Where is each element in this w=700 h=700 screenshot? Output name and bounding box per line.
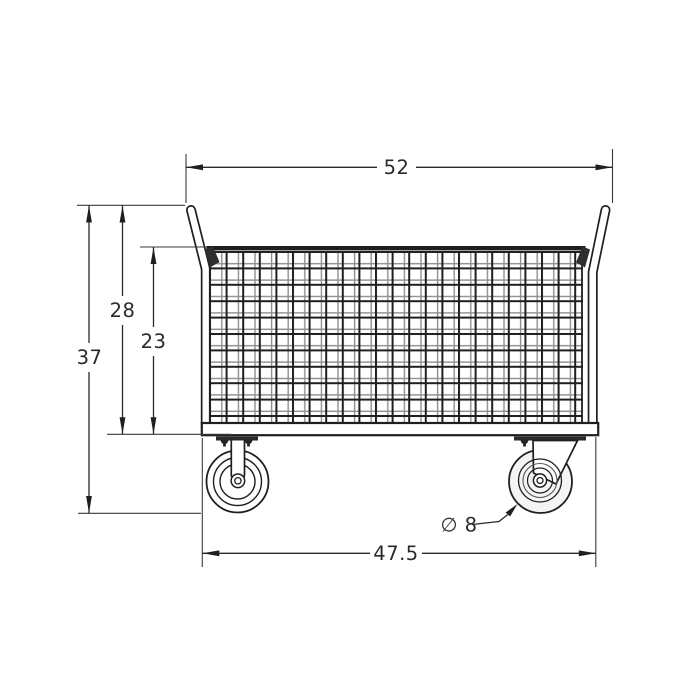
dim-wheel-diameter: ∅ 8 bbox=[440, 504, 517, 537]
arrowhead-down bbox=[86, 496, 92, 513]
dim-base-length-label: 47.5 bbox=[373, 542, 418, 565]
left-handle bbox=[191, 210, 206, 424]
mesh-panel bbox=[209, 251, 583, 423]
arrowhead-up bbox=[151, 247, 157, 264]
arrowhead-down bbox=[151, 417, 157, 434]
dim-overall-width-label: 52 bbox=[384, 156, 410, 179]
arrowhead-right bbox=[596, 164, 613, 170]
arrowhead-up bbox=[120, 206, 126, 223]
dim-cage-height-label: 23 bbox=[141, 330, 167, 353]
dim-cage-height: 23 bbox=[141, 247, 167, 434]
right-caster-bolt bbox=[521, 441, 529, 447]
left-caster-bolt bbox=[245, 441, 253, 447]
cart-body bbox=[191, 210, 606, 513]
left-caster bbox=[207, 437, 269, 513]
cart-technical-drawing: 52 37 28 23 47.5 ∅ 8 bbox=[0, 0, 700, 700]
cage-top-rail bbox=[207, 246, 586, 250]
right-handle bbox=[593, 210, 606, 424]
dim-overall-height-label: 37 bbox=[77, 346, 103, 369]
arrowhead-up bbox=[86, 206, 92, 223]
dim-base-length: 47.5 bbox=[202, 542, 596, 565]
dim-overall-height: 37 bbox=[77, 206, 103, 514]
dim-overall-width: 52 bbox=[186, 156, 613, 179]
drawing-canvas: 52 37 28 23 47.5 ∅ 8 bbox=[0, 0, 700, 700]
dim-handle-height: 28 bbox=[110, 206, 136, 435]
arrowhead-left bbox=[186, 164, 203, 170]
right-caster bbox=[509, 437, 586, 514]
left-wheel-hub bbox=[231, 474, 245, 488]
arrowhead-down bbox=[120, 417, 126, 434]
arrowhead-left bbox=[202, 550, 219, 556]
right-wheel-hub bbox=[533, 474, 546, 487]
left-caster-plate bbox=[216, 437, 258, 441]
dim-handle-height-label: 28 bbox=[110, 299, 136, 322]
arrowhead-right bbox=[579, 550, 596, 556]
left-caster-bolt bbox=[221, 441, 229, 447]
platform-deck bbox=[202, 423, 598, 435]
dim-wheel-diameter-label: ∅ 8 bbox=[440, 514, 477, 537]
